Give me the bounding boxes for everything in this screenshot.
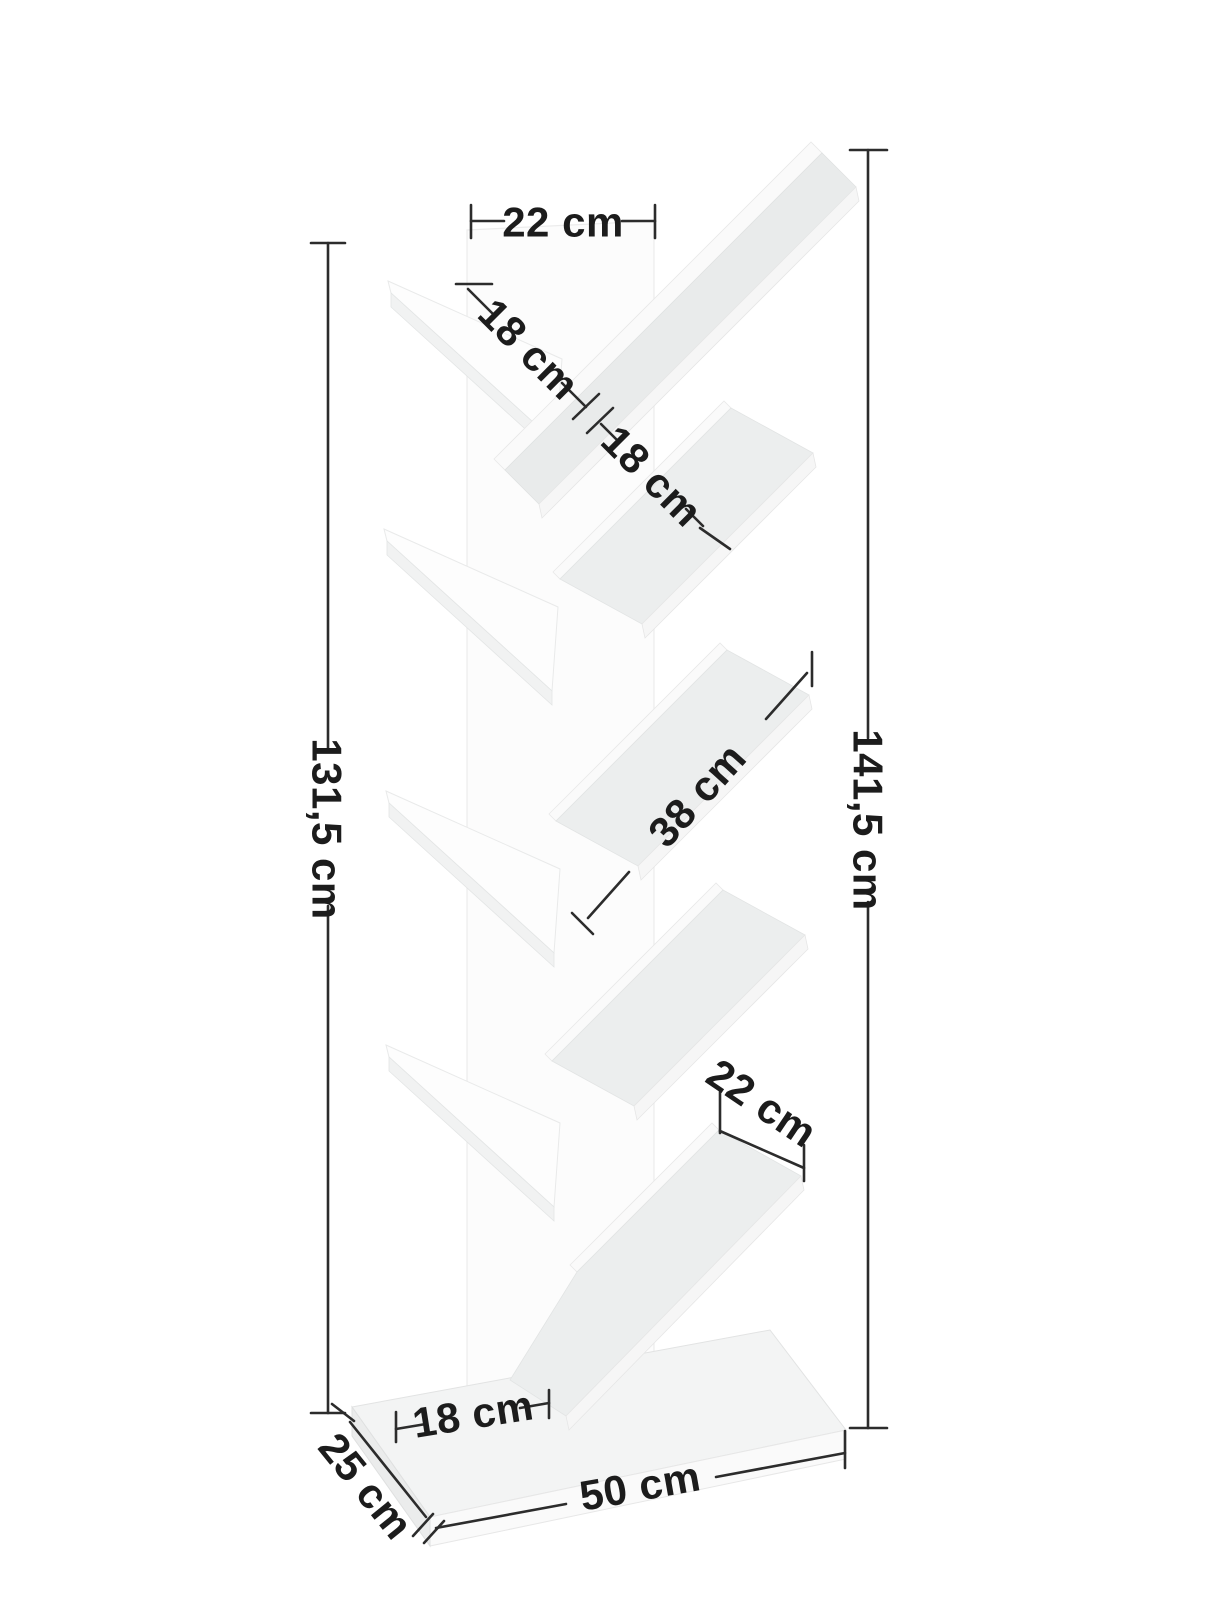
bookshelf [352,142,859,1546]
dimension-label: 131,5 cm [304,738,351,919]
product-dimension-diagram: 22 cm 18 cm 18 cm 38 cm [0,0,1214,1617]
dimension-total-height: 141,5 cm [845,150,892,1428]
bookshelf-dimension-illustration: 22 cm 18 cm 18 cm 38 cm [0,0,1214,1617]
dimension-spine-height: 131,5 cm [304,243,351,1413]
dimension-label: 141,5 cm [845,729,892,910]
dimension-label: 22 cm [502,199,624,246]
